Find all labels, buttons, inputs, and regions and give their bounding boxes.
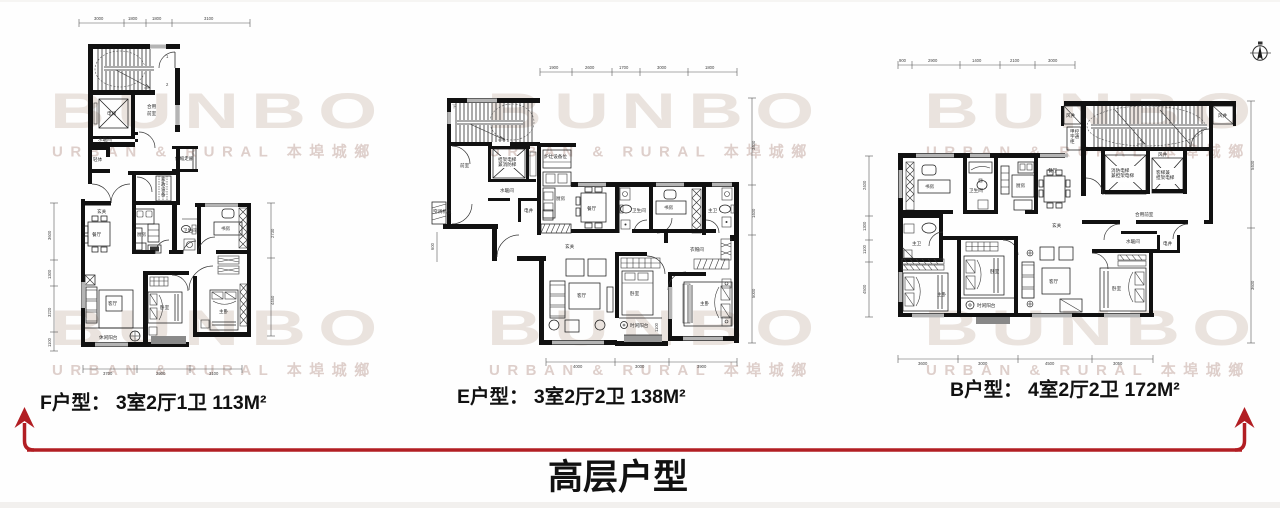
svg-text:餐厅: 餐厅 [92,231,102,238]
svg-text:玄关: 玄关 [97,208,107,215]
svg-text:客厅: 客厅 [577,292,587,299]
svg-text:客厅: 客厅 [1049,278,1059,285]
svg-text:1800: 1800 [128,16,138,21]
svg-text:3100: 3100 [209,371,219,376]
svg-text:3600: 3600 [918,361,928,366]
svg-text:1800: 1800 [705,65,715,70]
svg-text:3600: 3600 [1250,280,1255,290]
svg-text:主卧: 主卧 [219,308,229,315]
svg-text:电梯: 电梯 [107,110,117,117]
svg-text:主卧: 主卧 [700,300,710,307]
svg-text:4450: 4450 [270,295,275,305]
svg-text:3900: 3900 [697,364,707,369]
svg-text:1700: 1700 [619,65,629,70]
svg-text:风井: 风井 [1066,112,1076,119]
svg-text:2100: 2100 [1010,58,1020,63]
svg-text:卧室: 卧室 [1112,285,1122,292]
svg-text:兼担架电梯: 兼担架电梯 [1111,172,1134,179]
svg-text:水暖间: 水暖间 [98,136,112,143]
svg-text:2730: 2730 [270,228,275,238]
svg-text:时闲阳台: 时闲阳台 [977,302,996,309]
svg-text:1100: 1100 [654,322,659,332]
svg-text:1900: 1900 [549,65,559,70]
svg-text:柜: 柜 [1070,138,1075,145]
svg-text:1300: 1300 [862,221,867,231]
svg-text:卫生间: 卫生间 [632,207,646,214]
svg-text:卫生间: 卫生间 [969,187,983,194]
svg-text:1400: 1400 [972,58,982,63]
svg-text:书房: 书房 [925,183,935,190]
svg-text:F户型： 3室2厅1卫 113M²: F户型： 3室2厅1卫 113M² [40,391,267,414]
svg-text:备: 备 [161,191,166,198]
svg-text:2900: 2900 [156,371,166,376]
svg-text:玄关: 玄关 [1052,222,1062,229]
svg-text:1400: 1400 [751,208,756,218]
svg-text:前室: 前室 [147,110,157,117]
svg-text:卧室: 卧室 [630,290,640,297]
svg-text:玄关: 玄关 [565,243,575,250]
svg-text:卧室: 卧室 [990,268,1000,275]
svg-text:BUNBO: BUNBO [487,83,826,139]
svg-text:水暖间: 水暖间 [1126,238,1140,245]
svg-text:3400: 3400 [751,140,756,150]
svg-text:厨房: 厨房 [556,195,566,202]
svg-text:5400: 5400 [1250,160,1255,170]
svg-text:兼消防梯: 兼消防梯 [498,161,517,168]
svg-text:厨房: 厨房 [1016,182,1026,189]
svg-text:书房: 书房 [221,225,231,232]
svg-text:3700: 3700 [103,371,113,376]
svg-text:URBAN & RURAL 本埠城鄉: URBAN & RURAL 本埠城鄉 [489,361,814,379]
svg-text:主卫: 主卫 [708,207,718,213]
svg-text:URBAN & RURAL 本埠城鄉: URBAN & RURAL 本埠城鄉 [52,361,377,379]
svg-text:B户型： 4室2厅2卫 172M²: B户型： 4室2厅2卫 172M² [950,378,1180,401]
svg-text:主卧: 主卧 [937,291,947,298]
svg-text:电井: 电井 [524,207,534,214]
svg-text:合用前室: 合用前室 [1135,211,1154,218]
svg-text:空调机位: 空调机位 [433,208,452,215]
svg-text:900: 900 [899,58,907,63]
svg-text:2400: 2400 [862,180,867,190]
svg-text:3100: 3100 [204,16,214,21]
svg-text:合用: 合用 [147,103,157,110]
svg-text:风井: 风井 [1158,151,1168,158]
svg-text:衣帽间: 衣帽间 [690,246,704,253]
svg-text:风井: 风井 [1218,112,1228,119]
svg-text:主卫: 主卫 [912,240,922,246]
svg-text:1100: 1100 [47,337,52,347]
svg-text:5000: 5000 [751,288,756,298]
svg-text:1800: 1800 [152,16,162,21]
svg-text:3600: 3600 [47,230,52,240]
svg-text:2900: 2900 [928,58,938,63]
svg-text:4500: 4500 [1045,361,1055,366]
svg-text:E户型： 3室2厅2卫 138M²: E户型： 3室2厅2卫 138M² [457,385,686,408]
svg-text:厨房: 厨房 [137,231,147,238]
svg-text:4000: 4000 [573,364,583,369]
svg-text:URBAN & RURAL 本埠城鄉: URBAN & RURAL 本埠城鄉 [926,361,1251,379]
svg-text:3220: 3220 [47,307,52,317]
svg-text:轻体: 轻体 [93,156,103,163]
svg-text:3050: 3050 [1113,361,1123,366]
svg-text:3000: 3000 [635,364,645,369]
svg-text:高层户型: 高层户型 [548,458,688,497]
svg-text:卧室: 卧室 [160,304,170,311]
svg-text:2600: 2600 [585,65,595,70]
svg-text:3000: 3000 [978,361,988,366]
svg-text:4500: 4500 [862,284,867,294]
svg-text:书房: 书房 [664,204,674,211]
svg-text:1300: 1300 [47,269,52,279]
svg-text:BUNBO: BUNBO [924,300,1263,356]
svg-text:炉灶设备位: 炉灶设备位 [544,153,567,160]
svg-text:3000: 3000 [94,16,104,21]
svg-text:3000: 3000 [657,65,667,70]
svg-text:休闲阳台: 休闲阳台 [99,334,118,341]
svg-text:担架电梯: 担架电梯 [1156,174,1175,181]
svg-text:电井: 电井 [1163,240,1173,247]
svg-text:时闲阳台: 时闲阳台 [630,322,649,329]
svg-text:3000: 3000 [1048,58,1058,63]
svg-text:600: 600 [430,242,435,250]
svg-text:卫生间: 卫生间 [183,227,197,234]
svg-text:客厅: 客厅 [108,300,118,307]
svg-text:水暖间: 水暖间 [500,187,514,194]
svg-text:1100: 1100 [862,244,867,254]
svg-text:餐厅: 餐厅 [587,205,597,212]
svg-text:前室: 前室 [460,162,470,169]
